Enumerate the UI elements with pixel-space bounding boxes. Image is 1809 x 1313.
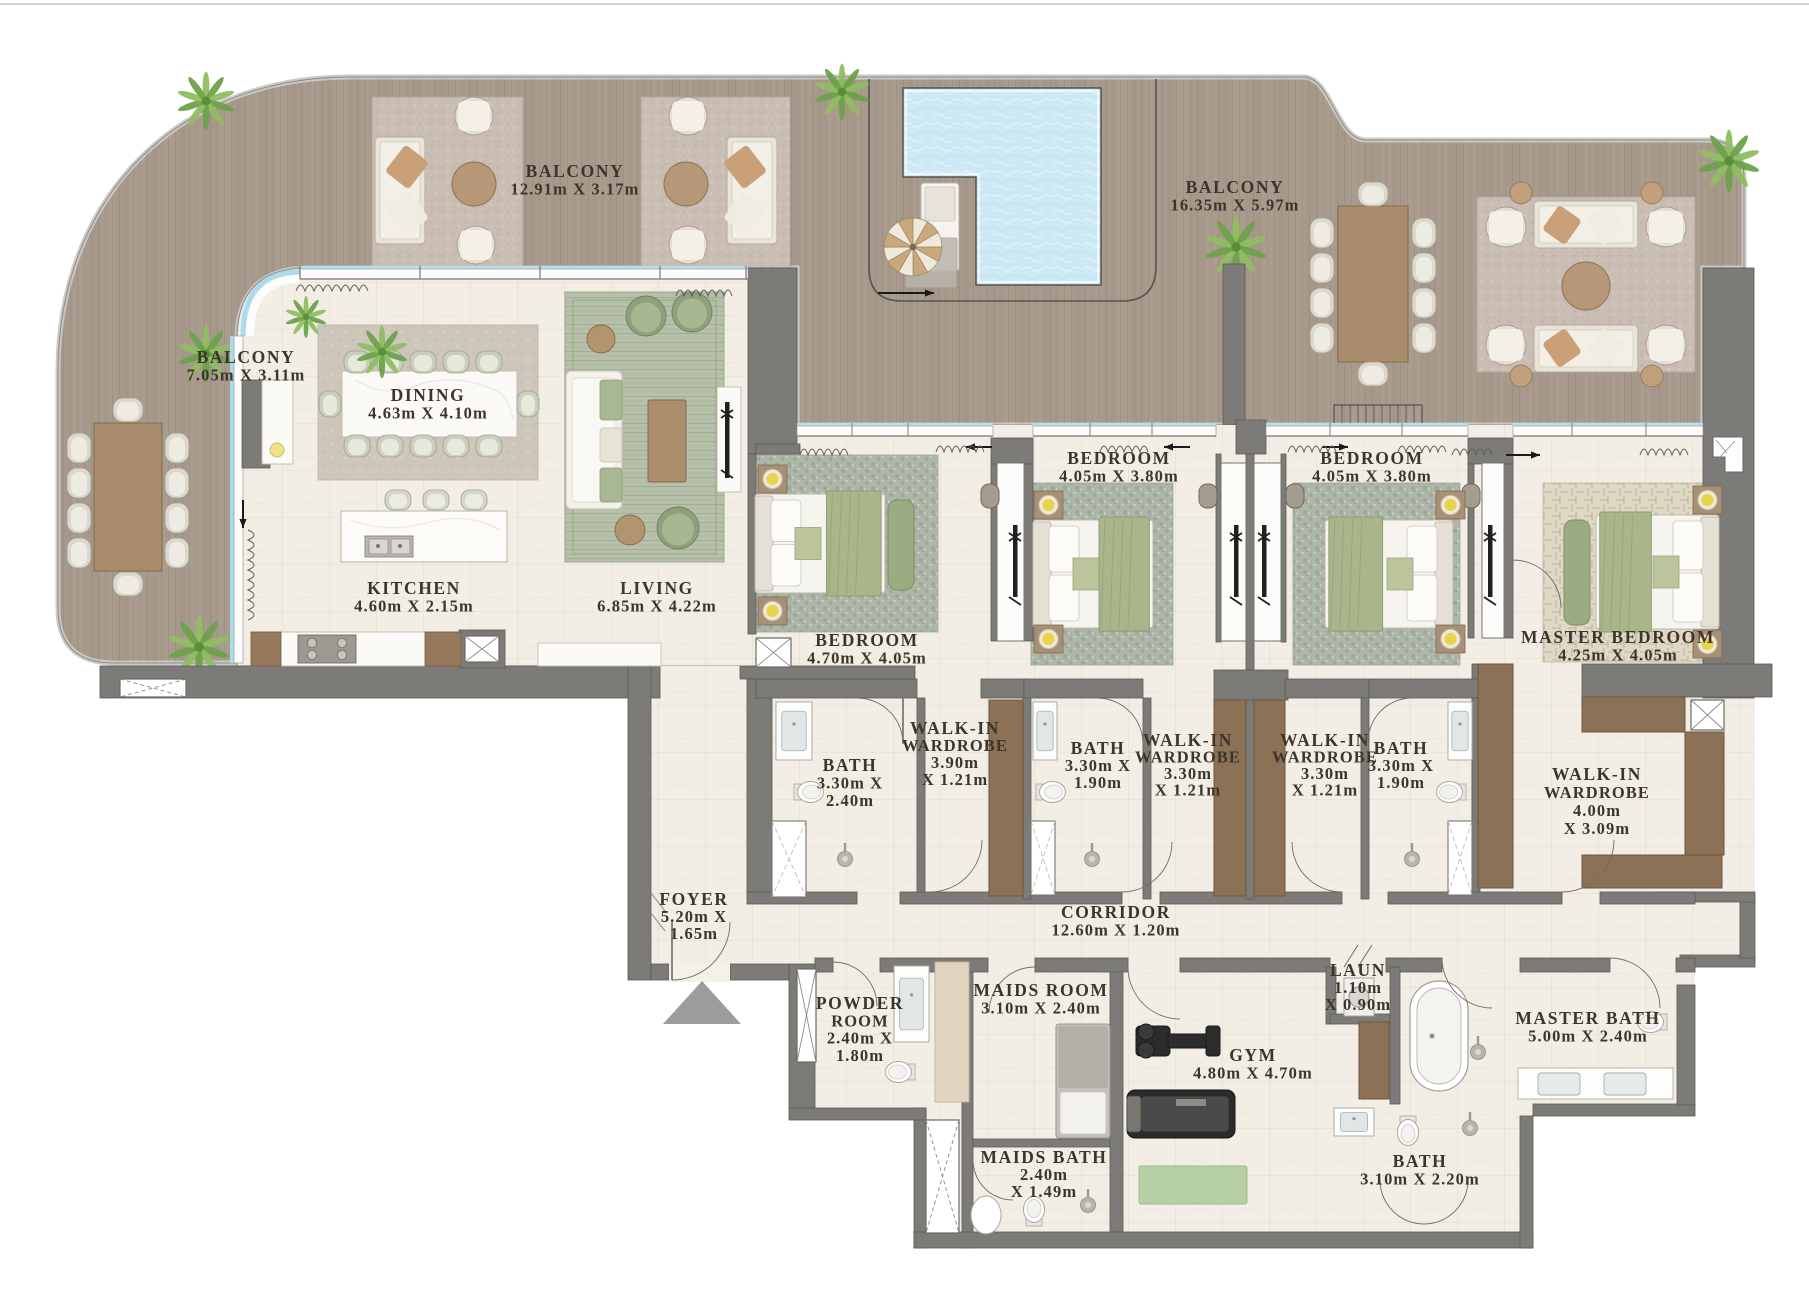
svg-text:CORRIDOR: CORRIDOR — [1061, 902, 1171, 922]
svg-text:4.80m X 4.70m: 4.80m X 4.70m — [1193, 1064, 1313, 1083]
svg-text:GYM: GYM — [1229, 1045, 1277, 1065]
svg-text:POWDER: POWDER — [816, 993, 904, 1013]
svg-text:X 1.49m: X 1.49m — [1011, 1182, 1077, 1201]
svg-text:ROOM: ROOM — [831, 1011, 889, 1030]
svg-text:WALK-IN: WALK-IN — [910, 718, 1000, 738]
svg-text:12.91m X 3.17m: 12.91m X 3.17m — [510, 180, 639, 199]
svg-text:FOYER: FOYER — [659, 889, 728, 909]
svg-text:LAUN: LAUN — [1330, 960, 1386, 980]
svg-text:BATH: BATH — [1071, 738, 1126, 758]
svg-text:BEDROOM: BEDROOM — [815, 630, 919, 650]
svg-text:4.60m X 2.15m: 4.60m X 2.15m — [354, 597, 474, 616]
svg-text:2.40m: 2.40m — [826, 791, 874, 810]
svg-text:5.00m X 2.40m: 5.00m X 2.40m — [1528, 1027, 1648, 1046]
svg-text:16.35m X 5.97m: 16.35m X 5.97m — [1170, 196, 1299, 215]
svg-text:2.40m X: 2.40m X — [827, 1029, 893, 1048]
svg-text:X 0.90m: X 0.90m — [1325, 995, 1391, 1014]
svg-text:4.63m X 4.10m: 4.63m X 4.10m — [368, 404, 488, 423]
svg-text:4.05m X 3.80m: 4.05m X 3.80m — [1059, 467, 1179, 486]
svg-text:1.90m: 1.90m — [1074, 773, 1122, 792]
svg-text:7.05m X 3.11m: 7.05m X 3.11m — [187, 366, 306, 385]
svg-text:X 3.09m: X 3.09m — [1564, 819, 1630, 838]
svg-text:3.10m X 2.40m: 3.10m X 2.40m — [981, 999, 1101, 1018]
svg-text:6.85m X 4.22m: 6.85m X 4.22m — [597, 597, 717, 616]
svg-text:X 1.21m: X 1.21m — [1292, 781, 1358, 800]
svg-text:MAIDS ROOM: MAIDS ROOM — [973, 980, 1108, 1000]
svg-text:3.10m X 2.20m: 3.10m X 2.20m — [1360, 1170, 1480, 1189]
svg-text:1.80m: 1.80m — [836, 1046, 884, 1065]
svg-text:WARDROBE: WARDROBE — [1544, 783, 1650, 802]
svg-text:MASTER BEDROOM: MASTER BEDROOM — [1521, 627, 1715, 647]
svg-text:BALCONY: BALCONY — [197, 347, 296, 367]
svg-text:4.25m X 4.05m: 4.25m X 4.05m — [1558, 646, 1678, 665]
svg-text:BATH: BATH — [823, 755, 878, 775]
svg-text:BALCONY: BALCONY — [526, 161, 625, 181]
svg-text:BEDROOM: BEDROOM — [1320, 448, 1424, 468]
svg-text:1.65m: 1.65m — [670, 924, 718, 943]
svg-text:X 1.21m: X 1.21m — [922, 770, 988, 789]
svg-text:MAIDS BATH: MAIDS BATH — [980, 1147, 1107, 1167]
svg-text:4.05m X 3.80m: 4.05m X 3.80m — [1312, 467, 1432, 486]
svg-text:4.70m X 4.05m: 4.70m X 4.05m — [807, 649, 927, 668]
svg-text:KITCHEN: KITCHEN — [367, 578, 461, 598]
svg-text:MASTER BATH: MASTER BATH — [1515, 1008, 1660, 1028]
svg-text:BEDROOM: BEDROOM — [1067, 448, 1171, 468]
svg-text:BATH: BATH — [1393, 1151, 1448, 1171]
svg-text:BATH: BATH — [1374, 738, 1429, 758]
svg-text:DINING: DINING — [391, 385, 466, 405]
svg-text:X 1.21m: X 1.21m — [1155, 781, 1221, 800]
svg-text:12.60m X 1.20m: 12.60m X 1.20m — [1051, 921, 1180, 940]
svg-text:BALCONY: BALCONY — [1186, 177, 1285, 197]
svg-text:4.00m: 4.00m — [1573, 801, 1621, 820]
svg-text:3.30m X: 3.30m X — [817, 774, 883, 793]
svg-text:1.90m: 1.90m — [1377, 773, 1425, 792]
svg-text:LIVING: LIVING — [620, 578, 694, 598]
svg-text:WALK-IN: WALK-IN — [1552, 764, 1642, 784]
